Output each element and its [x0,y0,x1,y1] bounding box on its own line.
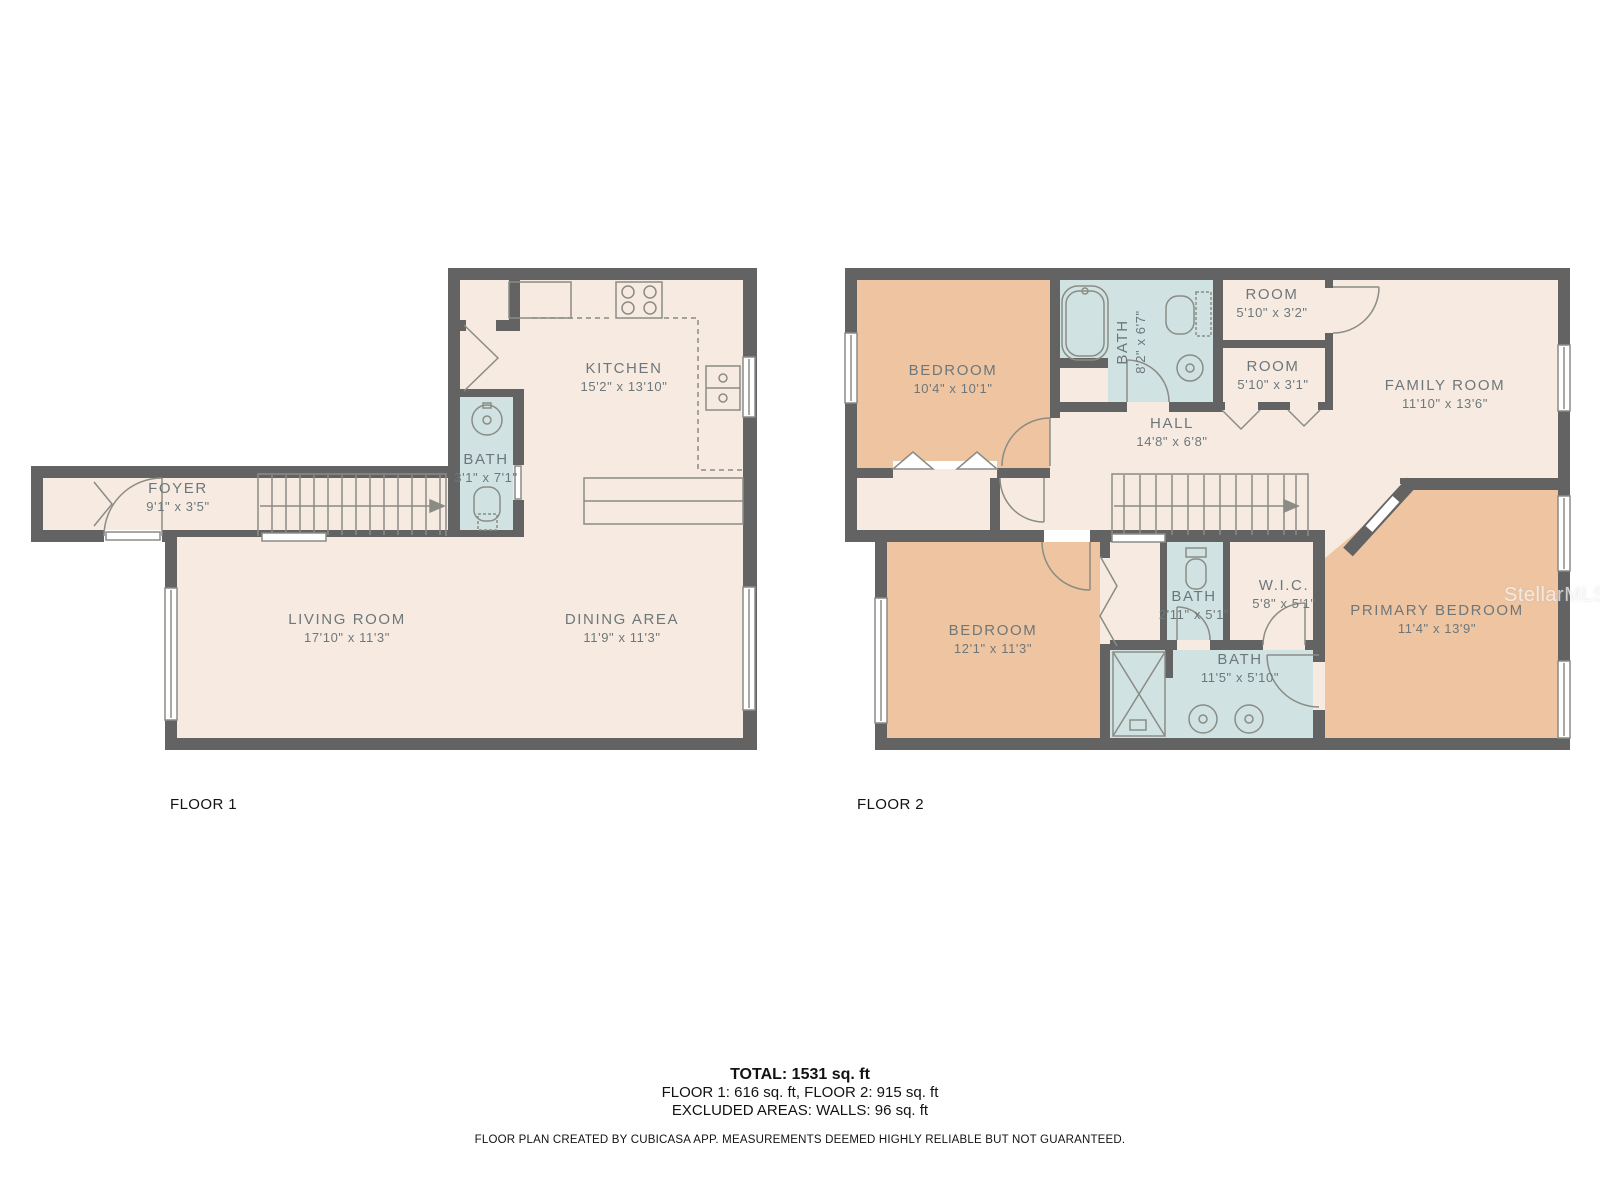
room-label-bath1: BATH 3'1" x 7'1" [454,450,517,486]
floor2-shower-wall [1165,650,1173,678]
floor1-bath-wall-right-b [513,500,524,530]
room-label-bedroom2: BEDROOM 12'1" x 11'3" [949,621,1038,657]
floor2-bath4-wall-right-b [1313,710,1325,738]
floor2-linen-wall [1060,358,1108,368]
floor2-rooms-wall-bottom-a [1213,402,1225,410]
floor-areas-text: FLOOR 1: 616 sq. ft, FLOOR 2: 915 sq. ft [0,1084,1600,1102]
room-label-bath3: BATH 2'11" x 5'1" [1159,587,1229,623]
room-label-bath4: BATH 11'5" x 5'10" [1201,650,1279,686]
floor2-baths-wall-mid-a [1110,640,1177,650]
floor2-rooms-wall-bottom-c [1318,402,1333,410]
floor2-bedroom1-wall-right [1050,280,1060,418]
floor1-closet-wall-side [509,280,520,331]
floor2-rooms-divider-wall [1213,340,1333,348]
floor2-primary-wall-top [1400,478,1558,490]
disclaimer-text: FLOOR PLAN CREATED BY CUBICASA APP. MEAS… [0,1134,1600,1146]
floor2-bath4-wall-right-a [1313,650,1325,662]
floor1-caption: FLOOR 1 [170,796,237,813]
room-label-room2: ROOM 5'10" x 3'1" [1237,357,1308,393]
room-label-hall: HALL 14'8" x 6'8" [1136,414,1207,450]
floor2-rooms-wall-right-b [1325,333,1333,410]
room-label-dining-area: DINING AREA 11'9" x 11'3" [565,610,679,646]
floor2-baths-wall-mid-c [1305,640,1313,650]
floor2-bedroom2-wall-right-a [1100,542,1110,558]
floor2-caption: FLOOR 2 [857,796,924,813]
floor1-closet-wall-left [448,320,466,331]
room-label-living-room: LIVING ROOM 17'10" x 11'3" [288,610,406,646]
floor-plan-page: KITCHEN 15'2" x 13'10" BATH 3'1" x 7'1" … [0,0,1600,1200]
floor1-bath-wall-top [448,389,524,397]
floor2-closet-divider-wall [990,478,1000,530]
floor2-baths-wall-mid-b [1210,640,1263,650]
floor2-rooms-wall-bottom-b [1258,402,1290,410]
stellar-mls-watermark: StellarMLS [1504,584,1600,607]
room-label-family-room: FAMILY ROOM 11'10" x 13'6" [1385,376,1505,412]
floor2-bedroom1-wall-bottom-b [997,468,1050,478]
floor2-bath2-wall-bottom-a [1058,402,1127,412]
room-label-primary-bedroom: PRIMARY BEDROOM 11'4" x 13'9" [1350,601,1523,637]
floor2-rooms-wall-right-a [1325,280,1333,288]
excluded-areas-text: EXCLUDED AREAS: WALLS: 96 sq. ft [0,1102,1600,1120]
floor1-closet-wall-right [496,320,509,331]
floor2-bath2-wall-bottom-b [1169,402,1213,412]
room-label-wic: W.I.C. 5'8" x 5'1" [1252,576,1315,612]
floor2-bedroom1-wall-bottom-a [857,468,893,478]
area-summary: TOTAL: 1531 sq. ft FLOOR 1: 616 sq. ft, … [0,1066,1600,1146]
floor1-foyer-floor [43,478,448,530]
room-label-room1: ROOM 5'10" x 3'2" [1236,285,1307,321]
room-label-foyer: FOYER 9'1" x 3'5" [146,479,209,515]
room-label-bath2: BATH 8'2" x 6'7" [1113,310,1149,373]
room-label-kitchen: KITCHEN 15'2" x 13'10" [581,359,668,395]
floor2-linen-closet-floor [1060,368,1108,402]
room-label-bedroom1: BEDROOM 10'4" x 10'1" [909,361,998,397]
floor1-kitchen-dining-opening [524,498,743,550]
total-area-text: TOTAL: 1531 sq. ft [0,1066,1600,1084]
floor2-bedroom2-wall-right-b [1100,644,1110,738]
